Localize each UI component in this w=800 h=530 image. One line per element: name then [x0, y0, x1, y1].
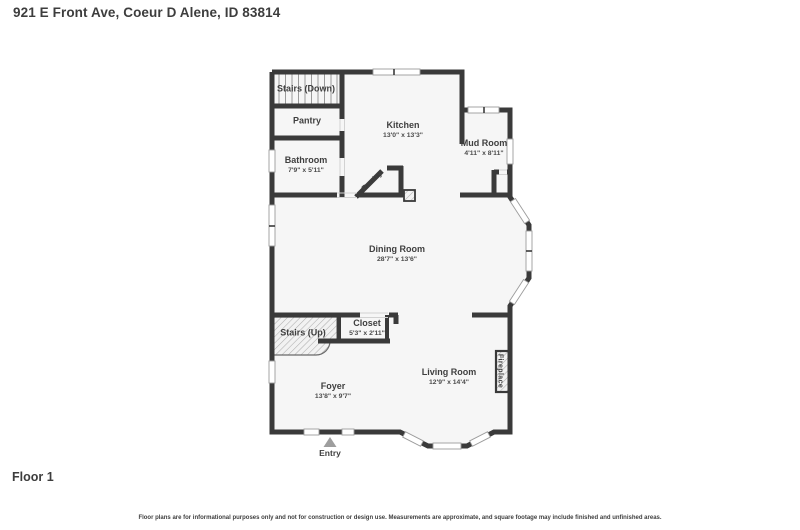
pantry-fixture — [404, 190, 415, 201]
room-label-stairs-up: Stairs (Up) — [280, 328, 326, 339]
floor-label: Floor 1 — [12, 470, 54, 484]
floor-plan-drawing — [0, 0, 800, 530]
floor-plan-canvas: Stairs (Down) Pantry Kitchen 13'0" x 13'… — [0, 0, 800, 530]
room-label-pantry-room: Pantry — [293, 116, 321, 127]
room-label-foyer: Foyer 13'8" x 9'7" — [315, 381, 351, 401]
entry-marker-icon — [324, 437, 337, 447]
entry-label: Entry — [319, 448, 341, 458]
room-label-living-room: Living Room 12'9" x 14'4" — [422, 367, 477, 387]
room-label-kitchen: Kitchen 13'0" x 13'3" — [383, 120, 423, 140]
floor-plan-page: 921 E Front Ave, Coeur D Alene, ID 83814 — [0, 0, 800, 530]
room-label-bathroom: Bathroom 7'9" x 5'11" — [285, 155, 328, 175]
disclaimer-text: Floor plans are for informational purpos… — [0, 515, 800, 521]
room-label-mud-room: Mud Room 4'11" x 8'11" — [461, 138, 508, 158]
room-label-closet: Closet 5'3" x 2'11" — [349, 318, 385, 338]
room-label-fireplace: Fireplace — [493, 354, 512, 388]
room-label-stairs-down: Stairs (Down) — [277, 84, 335, 95]
room-label-dining-room: Dining Room 28'7" x 13'6" — [369, 244, 425, 264]
